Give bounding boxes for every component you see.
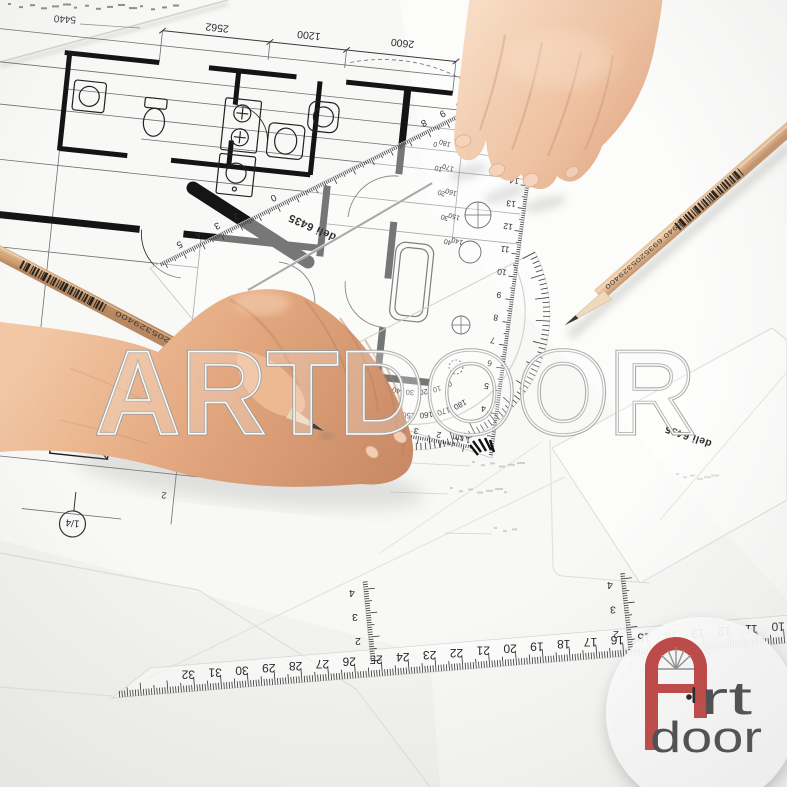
photo-architect-desk: 2562 1200 2600 1/4 2 1 5440 2019 xyxy=(0,0,787,787)
scale-number: 4 xyxy=(349,587,355,599)
scale-number: 10 xyxy=(771,620,785,634)
scale-number: 32 xyxy=(181,668,195,682)
scale-number: 31 xyxy=(208,666,222,680)
watermark: ARTDOOR ARTDOOR xyxy=(95,326,695,460)
door-handle xyxy=(686,694,692,700)
scale-number: 30 xyxy=(235,663,249,677)
scale-number: 23 xyxy=(423,648,437,662)
dim-label: 5440 xyxy=(53,12,76,25)
scale-number: 2 xyxy=(613,628,619,640)
scale-number: 24 xyxy=(396,650,410,664)
dim-label: 2562 xyxy=(205,20,230,34)
scale-number: 2 xyxy=(355,635,361,647)
scale-number: 4 xyxy=(607,579,613,591)
logo-text-door: door xyxy=(650,713,762,762)
scale-number: 26 xyxy=(342,655,356,669)
scale-number: 19 xyxy=(530,639,544,653)
scale-number: 10 xyxy=(496,267,507,278)
scene: 2562 1200 2600 1/4 2 1 5440 2019 xyxy=(0,0,787,787)
scale-number: 27 xyxy=(315,657,329,671)
door-crossbar xyxy=(645,684,707,693)
scale-number: 20 xyxy=(503,642,517,656)
watermark-text: ARTDOOR xyxy=(95,326,695,460)
scale-number: 18 xyxy=(557,637,571,651)
dim-label: 2600 xyxy=(390,36,415,50)
scale-number: 17 xyxy=(584,635,598,649)
scale-number: 3 xyxy=(610,604,616,616)
scale-number: 29 xyxy=(262,661,276,675)
scale-number: 12 xyxy=(502,221,513,232)
scale-number: 3 xyxy=(352,611,358,623)
scale-number: 22 xyxy=(449,646,463,660)
dim-label: 1200 xyxy=(296,28,321,42)
scale-note: 1/4 xyxy=(65,516,80,528)
scale-number: 28 xyxy=(289,659,303,673)
scale-number: 21 xyxy=(476,644,490,658)
scale-number: 11 xyxy=(500,244,510,255)
